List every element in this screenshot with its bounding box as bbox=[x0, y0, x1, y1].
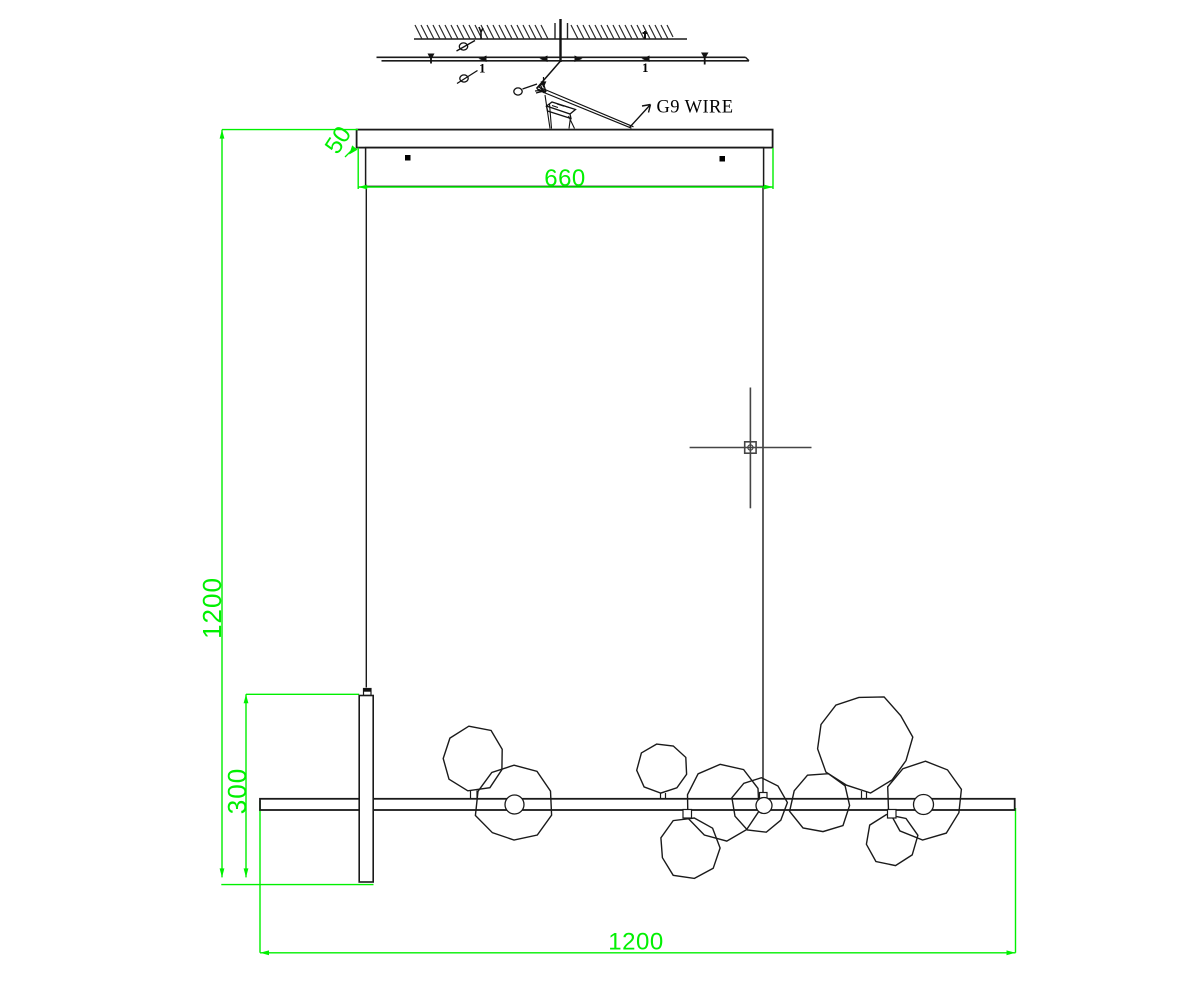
svg-text:1: 1 bbox=[479, 61, 486, 76]
svg-text:G9 WIRE: G9 WIRE bbox=[657, 98, 734, 118]
svg-text:1: 1 bbox=[642, 60, 649, 75]
svg-text:1200: 1200 bbox=[197, 577, 227, 639]
svg-text:300: 300 bbox=[222, 768, 252, 814]
svg-text:1200: 1200 bbox=[608, 929, 663, 956]
svg-text:660: 660 bbox=[544, 165, 586, 192]
